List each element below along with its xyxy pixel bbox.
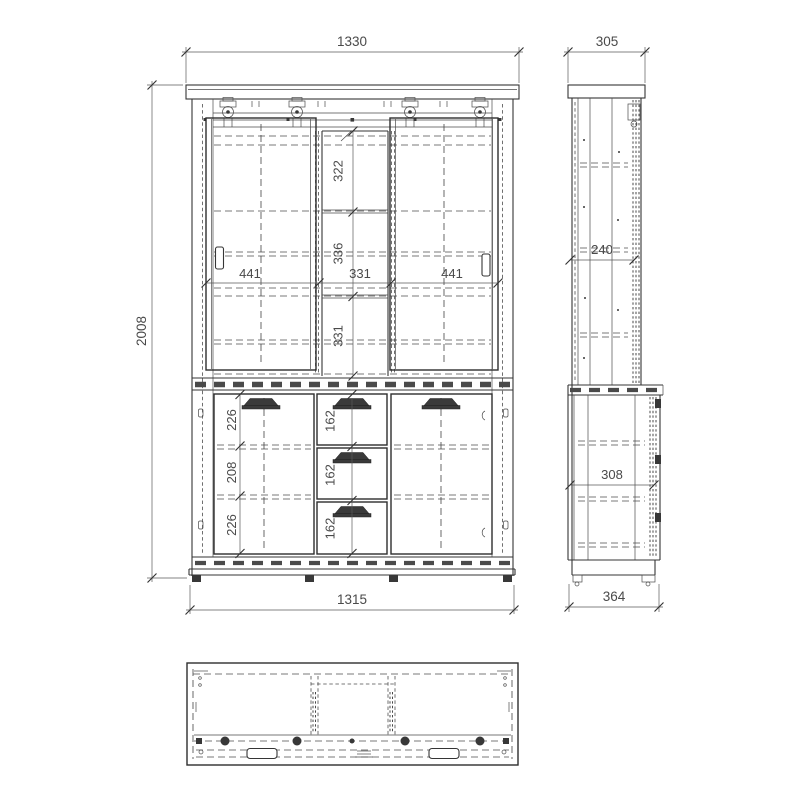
dim-upper-inner-depth: 240 <box>566 242 639 265</box>
dim-lower-left-1: 226 <box>224 409 239 431</box>
door-handle <box>422 399 460 410</box>
handle-plan <box>247 749 277 759</box>
roller-plan <box>401 737 410 746</box>
dim-overall-height: 2008 <box>134 81 187 583</box>
hinge-mark <box>504 409 509 417</box>
door-pull-left <box>216 247 224 269</box>
dim-drawer-3: 162 <box>323 518 338 540</box>
hinge-mark <box>504 521 509 529</box>
drawer-stack: 162 162 162 <box>317 390 387 558</box>
dim-overall-width-label: 1330 <box>337 34 367 49</box>
roller-bracket <box>472 98 488 128</box>
foot <box>192 575 201 582</box>
dim-base-width: 1315 <box>186 585 519 615</box>
plinth <box>189 557 515 582</box>
dim-lower-depth-label: 364 <box>603 589 626 604</box>
dim-upper-compartments: 322 336 331 <box>331 127 358 381</box>
roller-plan <box>293 737 302 746</box>
lower-door-right <box>391 394 508 554</box>
side-counter <box>568 385 663 395</box>
top-view-partitions <box>311 676 395 736</box>
dim-upper-depth-label: 305 <box>596 34 619 49</box>
top-view <box>187 663 518 765</box>
handle-plan <box>429 749 459 759</box>
roller-bracket <box>289 98 305 128</box>
technical-drawing: 322 336 331 441 331 441 <box>0 0 800 800</box>
dim-upper-inner-depth-label: 240 <box>591 242 613 257</box>
top-view-doors <box>196 749 509 759</box>
dim-upper-depth: 305 <box>564 34 650 83</box>
dim-right-door-width: 441 <box>441 266 463 281</box>
dim-overall-width: 1330 <box>182 34 524 83</box>
roller-bracket <box>402 98 418 128</box>
dim-drawer-2: 162 <box>323 464 338 486</box>
hinge-mark <box>655 513 661 522</box>
dim-upper-compartment-2: 336 <box>331 243 346 265</box>
side-carcass-upper <box>568 85 645 560</box>
dim-lower-left-2: 208 <box>224 462 239 484</box>
dim-drawer-heights: 162 162 162 <box>323 390 357 558</box>
dim-door-widths: 441 331 441 <box>202 266 503 288</box>
foot <box>573 575 582 582</box>
roller-plan <box>476 737 485 746</box>
hinge-mark <box>655 455 661 464</box>
hidden-lines-upper <box>214 124 491 374</box>
door-pull-right <box>482 254 490 276</box>
dim-lower-inner-depth-label: 308 <box>601 467 623 482</box>
top-view-track <box>194 735 511 746</box>
foot <box>305 575 314 582</box>
dim-upper-compartment-3: 331 <box>331 325 346 347</box>
dim-left-door-width: 441 <box>239 266 261 281</box>
foot <box>642 575 655 582</box>
side-view: 240 <box>564 34 664 612</box>
dim-lower-inner-depth: 308 <box>566 467 659 490</box>
dim-lower-left-3: 226 <box>224 514 239 536</box>
counter-divider <box>192 378 513 390</box>
roller-plan <box>350 739 355 744</box>
roller-side-bracket <box>628 104 640 120</box>
sliding-door-left <box>206 118 316 370</box>
lower-door-left <box>199 394 315 554</box>
roller-bracket <box>220 98 236 128</box>
dim-drawer-1: 162 <box>323 410 338 432</box>
dim-upper-compartment-1: 322 <box>331 160 346 182</box>
foot <box>503 575 512 582</box>
roller-plan <box>221 737 230 746</box>
dim-center-width: 331 <box>349 266 371 281</box>
sliding-door-track <box>204 101 502 127</box>
hinge-mark <box>482 528 485 537</box>
foot <box>389 575 398 582</box>
drawing-sheet: 322 336 331 441 331 441 <box>0 0 800 800</box>
roller-brackets <box>220 98 488 128</box>
door-handle <box>242 399 280 410</box>
dim-base-width-label: 1315 <box>337 592 367 607</box>
sliding-door-right <box>390 118 498 370</box>
side-base <box>568 560 660 586</box>
hinge-mark <box>482 411 485 420</box>
dim-lower-depth: 364 <box>565 584 664 612</box>
hinge-mark <box>655 399 661 408</box>
front-view: 322 336 331 441 331 441 <box>134 34 524 615</box>
dim-lower-left-compartments: 226 208 226 <box>224 390 245 558</box>
dim-overall-height-label: 2008 <box>134 316 149 346</box>
